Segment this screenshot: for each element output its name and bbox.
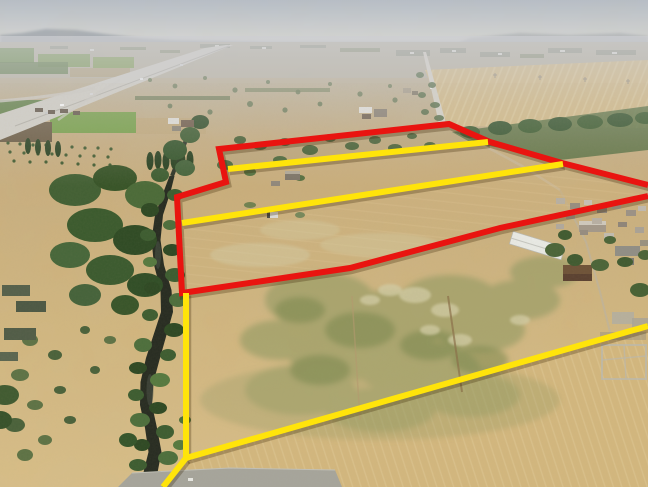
aerial-photo [0,0,648,487]
grass-grain-texture [0,120,648,487]
aerial-photo-svg [0,0,648,487]
